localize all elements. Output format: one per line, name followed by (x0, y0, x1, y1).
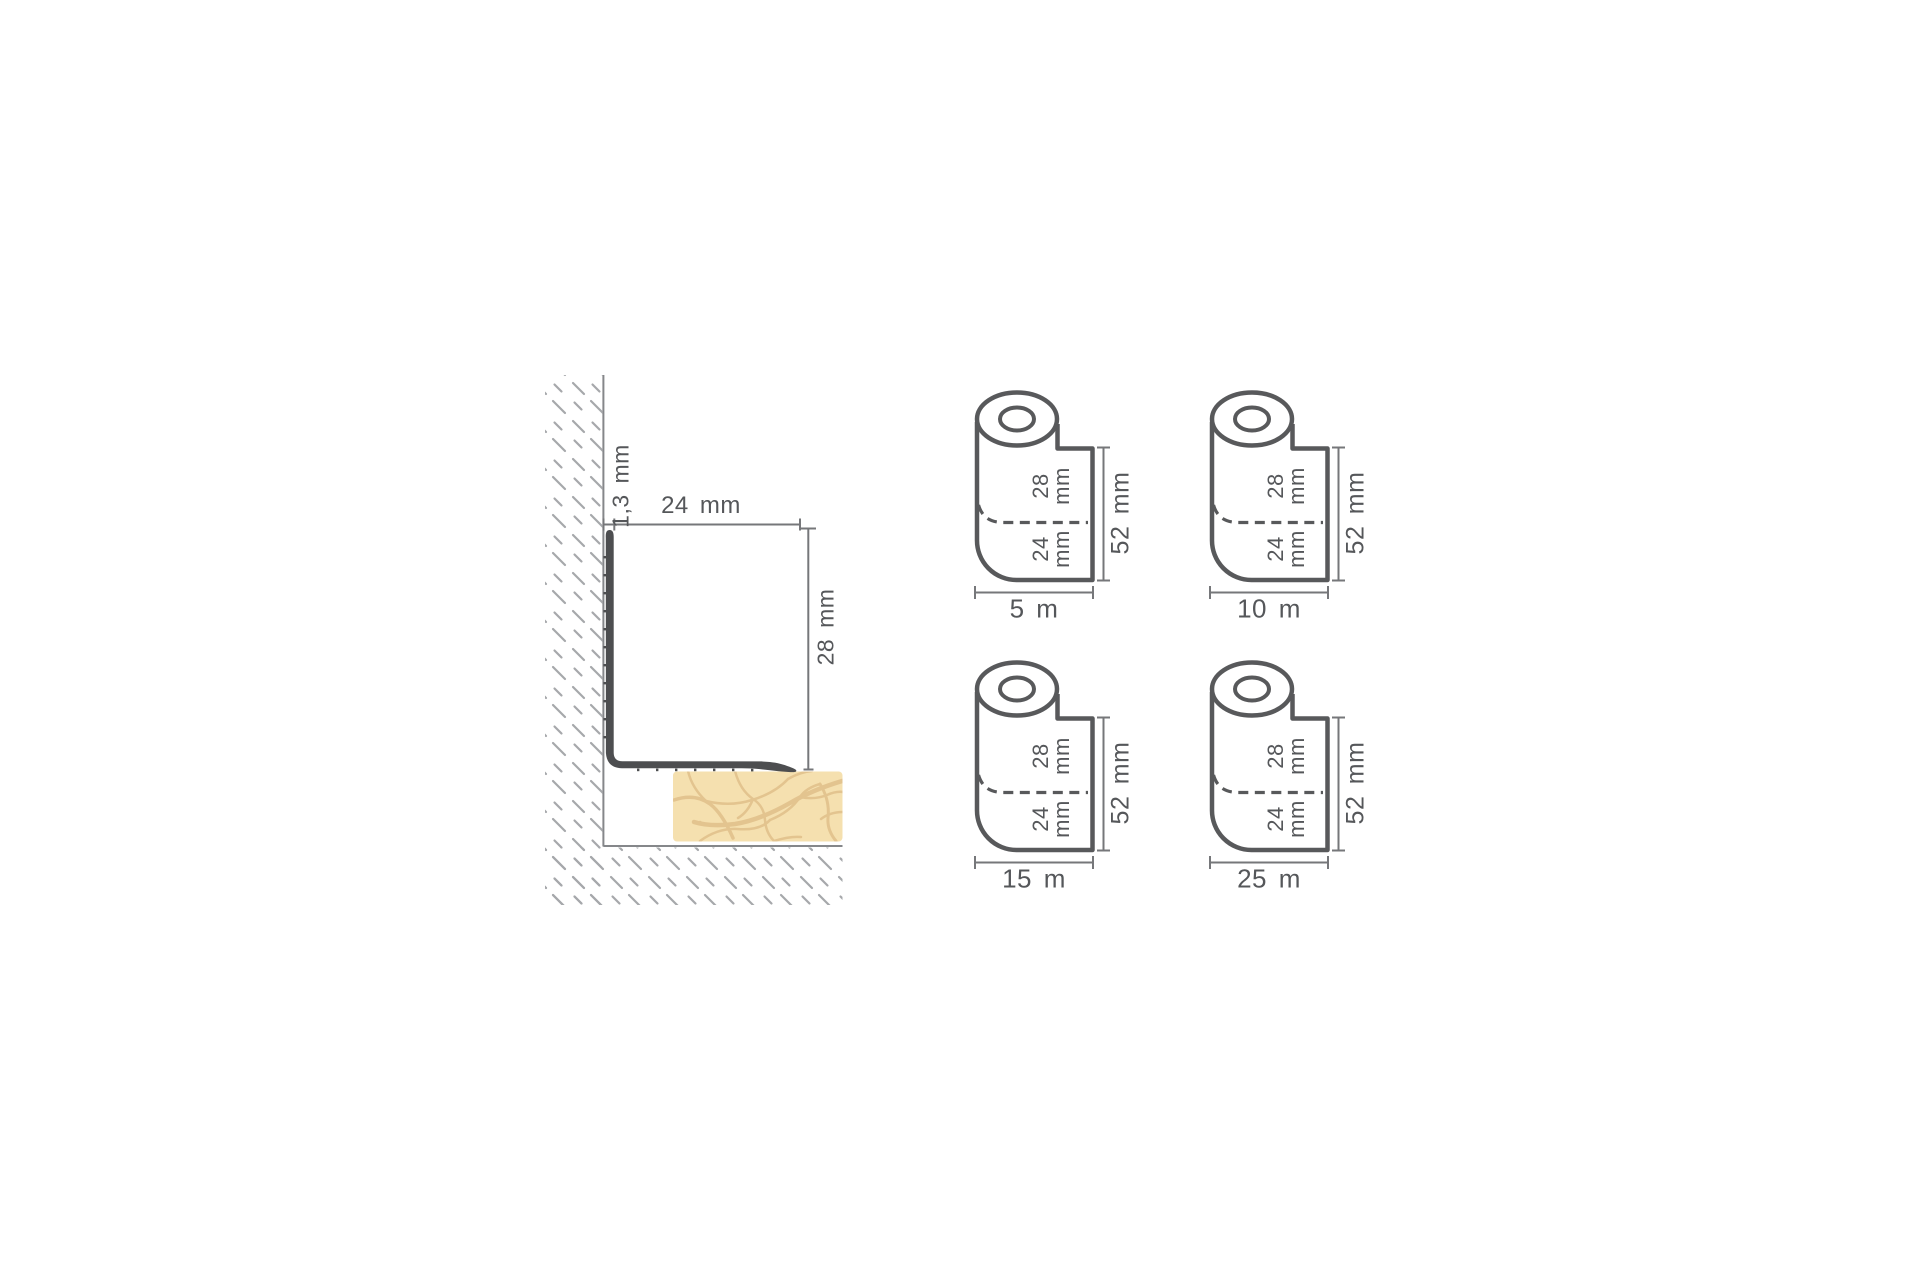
roll-4-upper-width-value: 28 (1265, 743, 1286, 768)
roll-1-total-width-label: 52 mm (1107, 472, 1136, 555)
roll-3-upper-width-label: 28 mm (1030, 737, 1072, 775)
roll-4-upper-width-label: 28 mm (1265, 737, 1307, 775)
roll-1-lower-width-value: 24 (1030, 536, 1051, 561)
profile-serrations (603, 556, 753, 771)
roll-3-lower-width-label: 24 mm (1030, 800, 1072, 838)
roll-2-lower-width-value: 24 (1265, 536, 1286, 561)
roll-2-lower-width-unit: mm (1286, 530, 1307, 568)
roll-4-lower-width-label: 24 mm (1265, 800, 1307, 838)
roll-2-upper-width-unit: mm (1286, 467, 1307, 505)
roll-1-lower-width-label: 24 mm (1030, 530, 1072, 568)
roll-4-total-width-label: 52 mm (1342, 742, 1371, 825)
drawing-layer (0, 0, 1920, 1280)
profile-body (606, 530, 797, 772)
roll-2-total-width-label: 52 mm (1342, 472, 1371, 555)
roll-3-upper-width-unit: mm (1051, 737, 1072, 775)
roll-2-upper-width-label: 28 mm (1265, 467, 1307, 505)
roll-3-length-label: 15 m (1002, 864, 1066, 895)
roll-4-upper-width-unit: mm (1286, 737, 1307, 775)
roll-2-upper-width-value: 28 (1265, 473, 1286, 498)
skirting-profile (603, 530, 796, 772)
roll-3-upper-width-value: 28 (1030, 743, 1051, 768)
roll-2-length-label: 10 m (1237, 594, 1301, 625)
roll-1-upper-width-unit: mm (1051, 467, 1072, 505)
profile-height-label: 28 mm (813, 589, 840, 666)
profile-width-label: 24 mm (661, 492, 741, 520)
roll-3-lower-width-value: 24 (1030, 806, 1051, 831)
floor-hatch (545, 848, 843, 906)
roll-1-upper-width-value: 28 (1030, 473, 1051, 498)
roll-1-upper-width-label: 28 mm (1030, 467, 1072, 505)
roll-3-total-width-label: 52 mm (1107, 742, 1136, 825)
technical-drawing-canvas: 1,3 mm 24 mm 28 mm 28 mm 24 mm 52 mm 5 m… (0, 0, 1920, 1280)
roll-1-length-label: 5 m (1010, 594, 1059, 625)
roll-1-lower-width-unit: mm (1051, 530, 1072, 568)
wall-hatch (545, 375, 602, 905)
profile-cross-section (545, 375, 843, 905)
roll-2-lower-width-label: 24 mm (1265, 530, 1307, 568)
roll-4-lower-width-value: 24 (1265, 806, 1286, 831)
roll-4-lower-width-unit: mm (1286, 800, 1307, 838)
roll-4-length-label: 25 m (1237, 864, 1301, 895)
roll-3-lower-width-unit: mm (1051, 800, 1072, 838)
profile-thickness-label: 1,3 mm (608, 444, 635, 528)
floor-tile (673, 771, 843, 842)
profile-dimension-lines (604, 519, 817, 770)
